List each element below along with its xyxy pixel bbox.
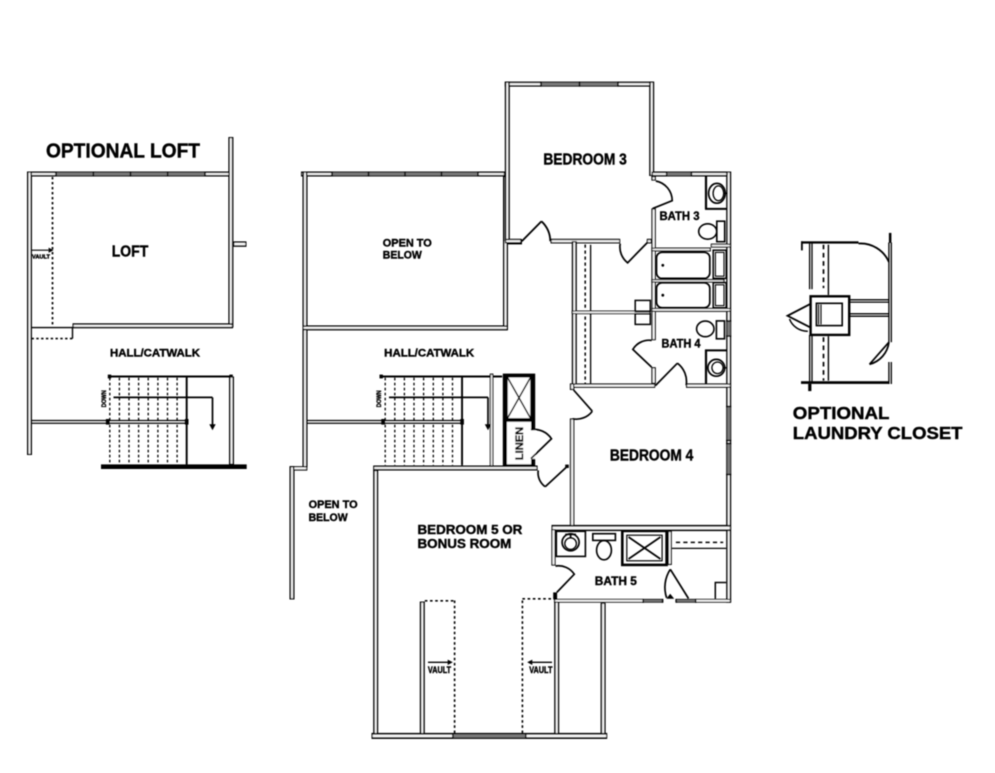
svg-text:BATH 4: BATH 4: [662, 337, 701, 351]
svg-text:DOWN: DOWN: [102, 390, 108, 407]
svg-text:OPTIONAL: OPTIONAL: [793, 403, 890, 423]
svg-text:BEDROOM 5 OR: BEDROOM 5 OR: [418, 523, 523, 537]
svg-text:VAULT: VAULT: [428, 665, 452, 675]
svg-text:BEDROOM 4: BEDROOM 4: [610, 448, 694, 465]
svg-text:OPTIONAL LOFT: OPTIONAL LOFT: [46, 141, 200, 163]
svg-text:HALL/CATWALK: HALL/CATWALK: [384, 348, 475, 360]
svg-text:BATH 3: BATH 3: [660, 209, 700, 223]
svg-text:VAULT: VAULT: [32, 255, 50, 261]
svg-text:BELOW: BELOW: [309, 512, 349, 524]
svg-text:LINEN: LINEN: [514, 427, 526, 460]
svg-text:DOWN: DOWN: [377, 390, 383, 407]
svg-text:LAUNDRY CLOSET: LAUNDRY CLOSET: [793, 423, 963, 443]
svg-text:BELOW: BELOW: [383, 250, 423, 262]
svg-text:VAULT: VAULT: [529, 665, 553, 675]
svg-text:OPEN TO: OPEN TO: [383, 238, 433, 250]
svg-text:HALL/CATWALK: HALL/CATWALK: [110, 348, 201, 360]
svg-text:OPEN TO: OPEN TO: [309, 499, 359, 511]
svg-text:BEDROOM 3: BEDROOM 3: [543, 152, 627, 169]
svg-text:BONUS ROOM: BONUS ROOM: [418, 537, 512, 551]
svg-text:BATH 5: BATH 5: [595, 574, 637, 588]
svg-text:LOFT: LOFT: [112, 243, 149, 260]
